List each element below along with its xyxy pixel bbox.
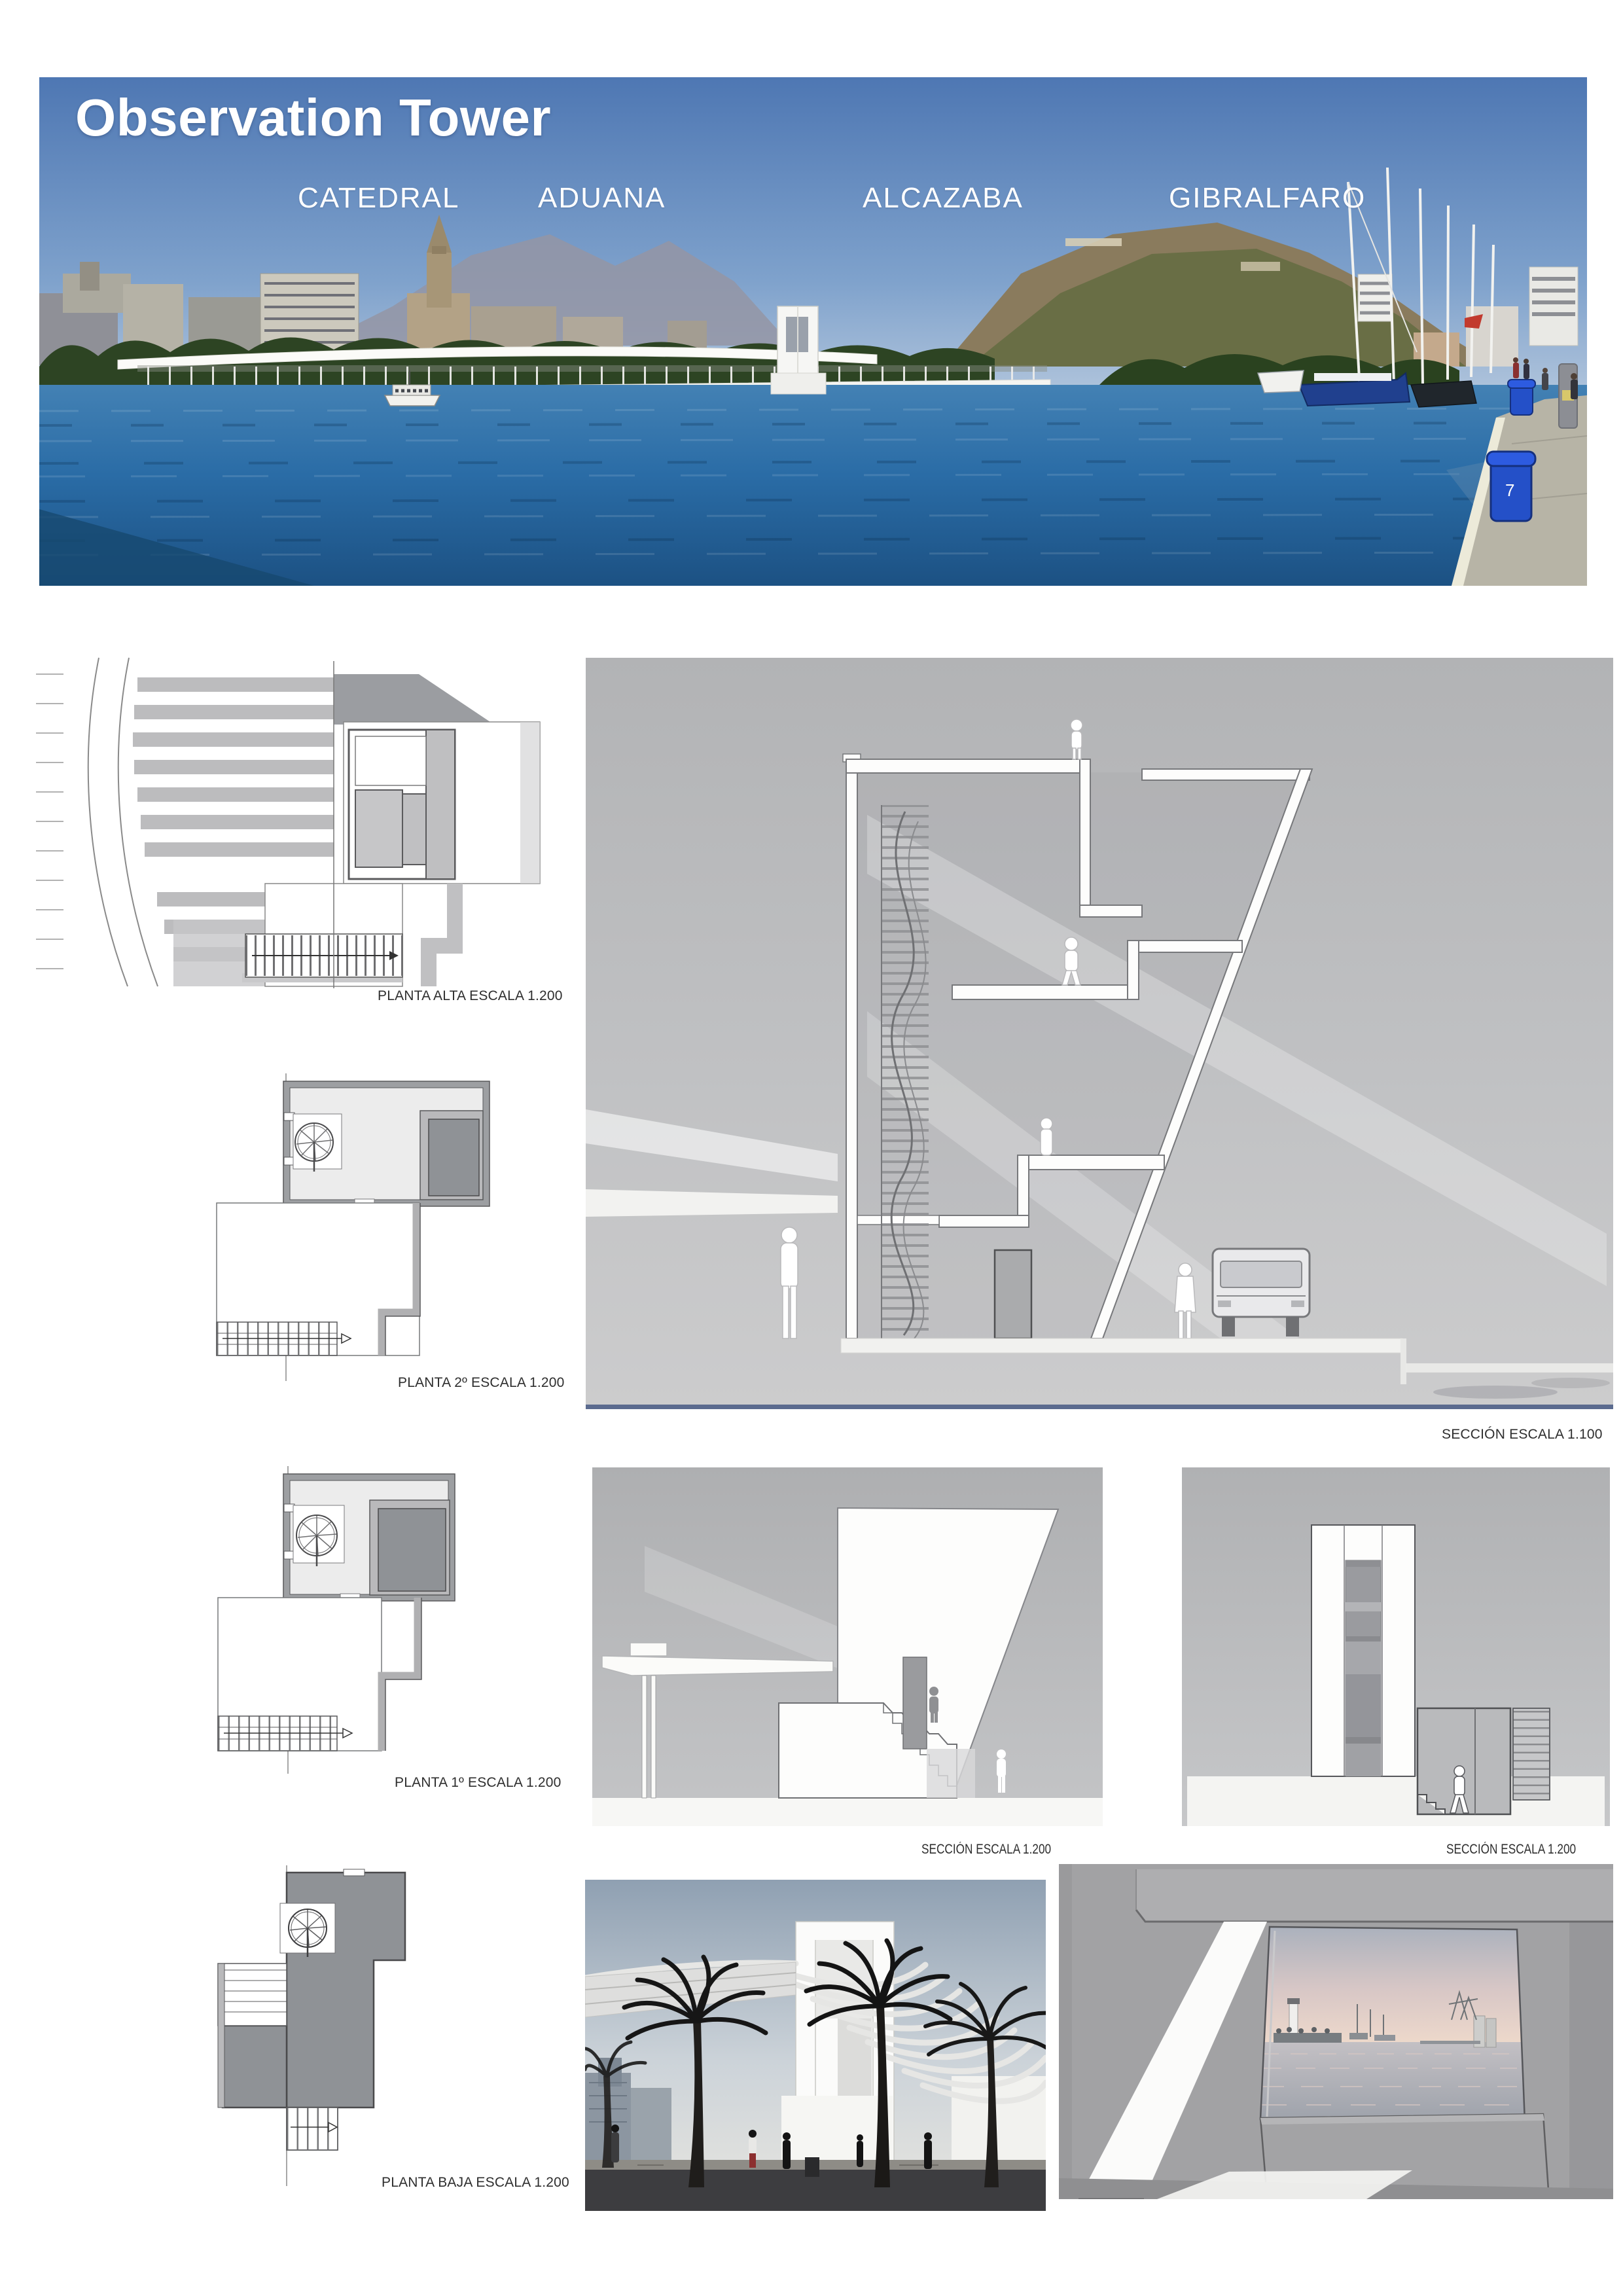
ground — [592, 1798, 1103, 1826]
door — [995, 1250, 1031, 1338]
elevator-shaft — [1346, 1560, 1381, 1776]
landmark-label-gibralfaro: GIBRALFARO — [1169, 182, 1366, 215]
observation-tower — [771, 306, 826, 394]
person-silhouette — [1041, 1118, 1052, 1155]
spiral-stair — [280, 1903, 335, 1957]
render-night-photo — [585, 1880, 1046, 2211]
left-wall — [846, 759, 857, 1338]
top-deck — [846, 759, 1090, 773]
site-ticks — [36, 674, 63, 969]
section-west-drawing — [592, 1467, 1103, 1826]
plan-2-drawing — [203, 1073, 560, 1401]
upper-room — [283, 1081, 490, 1206]
breakwater — [1420, 2041, 1480, 2044]
section-main-label: SECCIÓN ESCALA 1.100 — [1442, 1427, 1603, 1443]
section-main-drawing — [586, 658, 1613, 1409]
spiral-stair — [293, 1114, 342, 1172]
landmark-label-alcazaba: ALCAZABA — [863, 182, 1024, 215]
trash-bin — [805, 2157, 819, 2177]
plan-1-label: PLANTA 1º ESCALA 1.200 — [395, 1775, 562, 1791]
plan-alta-drawing — [36, 638, 553, 988]
mooring-bollard-small — [1508, 380, 1535, 415]
side-stair — [1513, 1708, 1550, 1800]
deck-notch-wall — [1080, 759, 1090, 916]
panorama-photo: 7 Observation Tower CATEDRAL — [39, 77, 1587, 586]
spiral-stair — [882, 805, 929, 1338]
upper-floor-rooms — [344, 722, 540, 884]
plan-1-drawing — [203, 1466, 560, 1793]
spiral-stair — [293, 1505, 344, 1566]
ceiling-beam — [1136, 1869, 1613, 1922]
floor-slab-1 — [1018, 1155, 1164, 1170]
mooring-bollard: 7 — [1487, 452, 1535, 521]
elevator — [903, 1657, 927, 1749]
bollard-number: 7 — [1505, 480, 1514, 500]
door-gap — [344, 1869, 365, 1876]
landmark-label-aduana: ADUANA — [538, 182, 666, 215]
lower-terrace — [217, 1203, 420, 1355]
castle-wall — [1065, 238, 1122, 246]
render-interior-view — [1059, 1864, 1613, 2199]
section-east-label: SECCIÓN ESCALA 1.200 — [1446, 1842, 1576, 1857]
floor-slab-2 — [952, 985, 1139, 999]
landmark-label-catedral: CATEDRAL — [298, 182, 459, 215]
image-border-bottom — [586, 1405, 1613, 1409]
person-silhouette — [997, 1749, 1006, 1793]
sea-water — [39, 385, 1587, 586]
section-west-label: SECCIÓN ESCALA 1.200 — [921, 1842, 1051, 1857]
section-east-drawing — [1182, 1467, 1610, 1826]
plan-baja-drawing — [203, 1865, 560, 2199]
roof-slab — [1142, 769, 1310, 780]
person-silhouette — [929, 1687, 938, 1723]
pier-strip — [1274, 2033, 1342, 2043]
harbor-view-photo — [1255, 1923, 1530, 2127]
upper-room — [283, 1474, 455, 1601]
panorama-scene: 7 — [39, 77, 1587, 586]
cathedral-tower — [427, 253, 452, 308]
bottom-stair — [287, 2108, 338, 2150]
plan-2-label: PLANTA 2º ESCALA 1.200 — [398, 1375, 565, 1391]
page-title: Observation Tower — [75, 88, 551, 148]
plan-alta-label: PLANTA ALTA ESCALA 1.200 — [378, 988, 563, 1004]
plan-baja-label: PLANTA BAJA ESCALA 1.200 — [382, 2175, 569, 2191]
tower-elevation — [1311, 1525, 1415, 1776]
stair-hatched — [242, 934, 402, 982]
presentation-board: 7 Observation Tower CATEDRAL — [0, 0, 1623, 2296]
lower-terrace — [218, 1598, 421, 1751]
